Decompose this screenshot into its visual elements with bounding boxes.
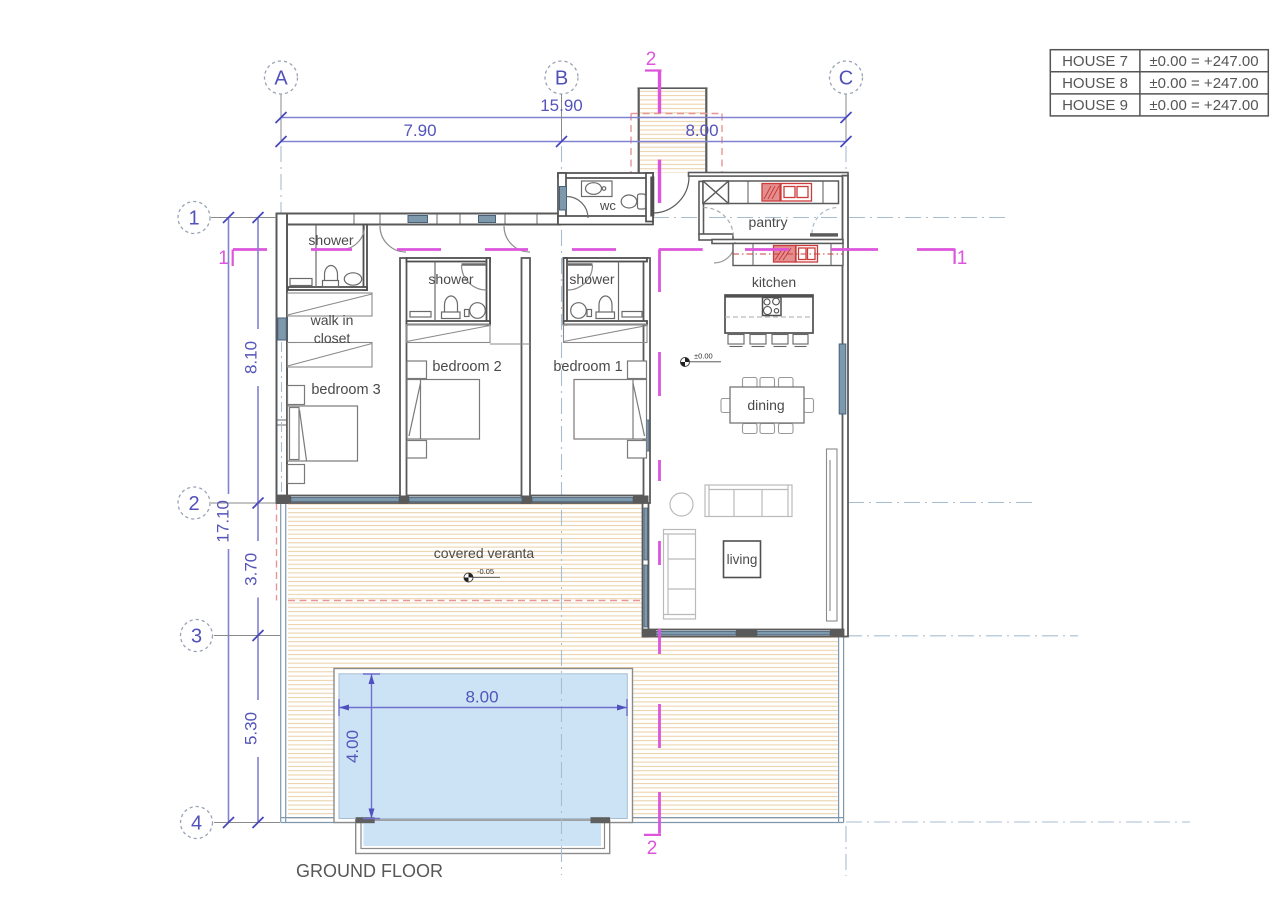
svg-text:C: C [839,68,853,90]
svg-text:-0.05: -0.05 [477,567,494,576]
svg-text:17.10: 17.10 [213,500,232,543]
svg-text:shower: shower [569,271,614,287]
svg-text:shower: shower [428,271,473,287]
svg-text:HOUSE 7: HOUSE 7 [1062,53,1128,70]
svg-text:5.30: 5.30 [242,712,261,745]
svg-text:2: 2 [646,49,657,70]
svg-text:covered veranta: covered veranta [434,545,535,561]
svg-text:walk in: walk in [310,312,354,328]
svg-text:±0.00: ±0.00 [694,352,713,361]
svg-text:shower: shower [308,232,353,248]
svg-text:pantry: pantry [749,214,788,230]
svg-text:±0.00 = +247.00: ±0.00 = +247.00 [1149,53,1258,70]
svg-text:kitchen: kitchen [752,274,796,290]
svg-text:7.90: 7.90 [403,121,436,140]
svg-text:1: 1 [218,248,229,269]
svg-text:closet: closet [314,330,351,346]
svg-text:HOUSE 9: HOUSE 9 [1062,97,1128,114]
svg-text:2: 2 [188,493,199,515]
svg-text:HOUSE 8: HOUSE 8 [1062,75,1128,92]
svg-text:4: 4 [191,813,202,835]
svg-text:B: B [555,68,568,90]
svg-text:GROUND FLOOR: GROUND FLOOR [296,861,443,881]
svg-text:8.00: 8.00 [465,688,498,707]
svg-text:3.70: 3.70 [242,553,261,586]
svg-text:2: 2 [647,838,658,859]
svg-text:8.10: 8.10 [242,341,261,374]
svg-text:1: 1 [188,208,199,230]
svg-text:A: A [274,68,288,90]
svg-text:±0.00 = +247.00: ±0.00 = +247.00 [1149,97,1258,114]
svg-text:bedroom 2: bedroom 2 [432,359,501,375]
svg-text:dining: dining [747,397,784,413]
svg-text:3: 3 [191,626,202,648]
svg-text:living: living [727,552,758,567]
svg-text:4.00: 4.00 [343,730,362,763]
svg-text:1: 1 [957,248,968,269]
svg-text:bedroom 1: bedroom 1 [553,359,622,375]
svg-text:±0.00 = +247.00: ±0.00 = +247.00 [1149,75,1258,92]
svg-text:15.90: 15.90 [540,96,583,115]
svg-text:bedroom 3: bedroom 3 [311,382,380,398]
svg-text:wc: wc [599,198,616,213]
svg-text:8.00: 8.00 [685,121,718,140]
